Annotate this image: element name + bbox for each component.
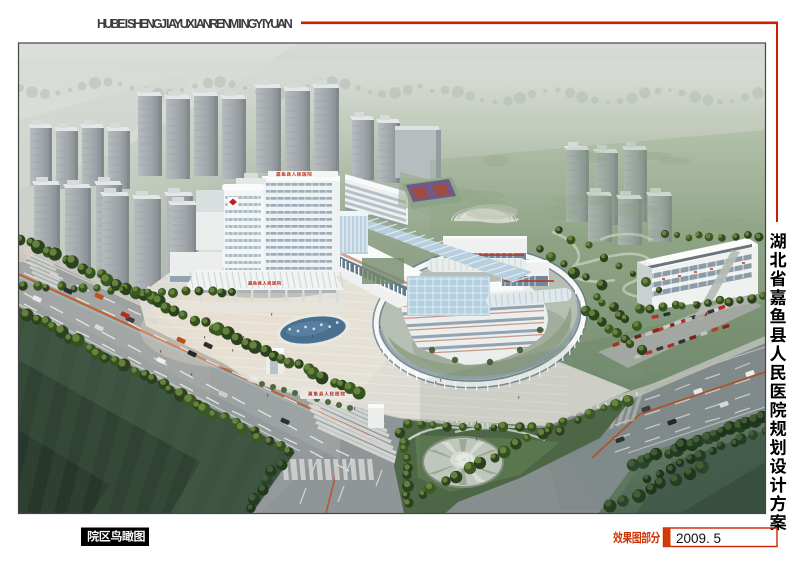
svg-text:HUBE I SHENGJ I AYUX I ANRENM: HUBE I SHENGJ I AYUX I ANRENM I NGY I YU… xyxy=(97,17,293,31)
svg-text:2009. 5: 2009. 5 xyxy=(676,531,721,546)
